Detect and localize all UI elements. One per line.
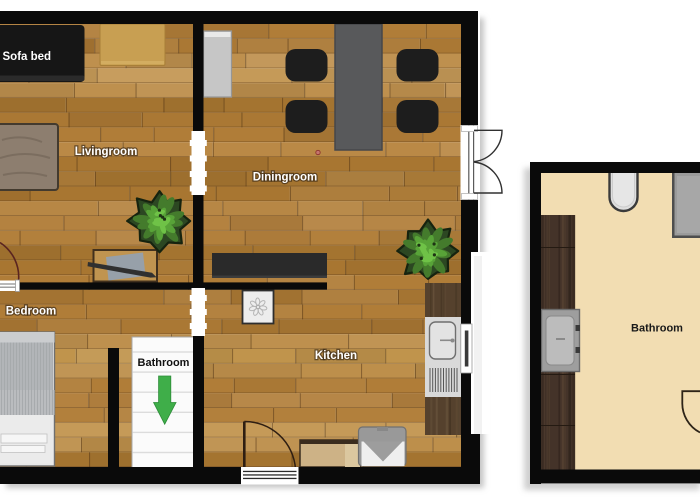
- svg-text:Sofa bed: Sofa bed: [3, 51, 52, 63]
- svg-text:Bathroom: Bathroom: [138, 357, 190, 369]
- svg-text:Livingroom: Livingroom: [75, 146, 138, 158]
- svg-text:Bathroom: Bathroom: [631, 323, 683, 335]
- svg-text:Bedroom: Bedroom: [6, 305, 56, 317]
- svg-text:Diningroom: Diningroom: [253, 172, 318, 184]
- svg-text:Kitchen: Kitchen: [315, 350, 357, 362]
